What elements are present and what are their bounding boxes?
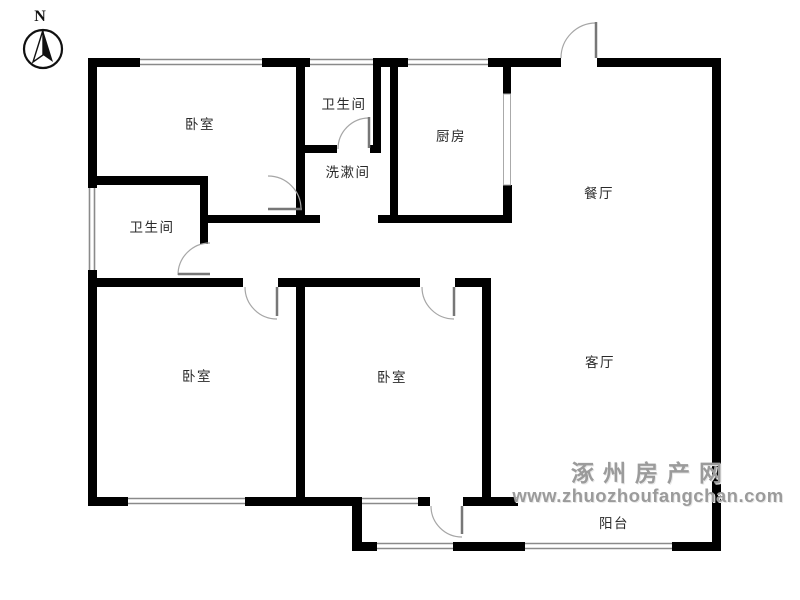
floorplan-drawing — [0, 0, 800, 600]
room-label-living-room: 客厅 — [585, 351, 615, 371]
room-label-bedroom-bottom-left: 卧室 — [182, 365, 212, 385]
floorplan-page: N 卧室 卫生间 洗漱间 厨房 餐厅 卫生间 卧室 卧室 客厅 阳台 涿州房产网… — [0, 0, 800, 600]
watermark-site-url: www.zhuozhoufangchan.com — [512, 485, 783, 507]
room-label-bathroom-left: 卫生间 — [130, 216, 175, 236]
entry-door — [561, 22, 596, 58]
kitchen-sliding-door — [504, 94, 511, 185]
north-compass-icon — [24, 30, 62, 68]
room-label-bedroom-middle: 卧室 — [377, 366, 407, 386]
bedroom-middle-door — [422, 287, 454, 319]
bathroom-left-door — [178, 243, 210, 275]
room-label-kitchen: 厨房 — [436, 125, 466, 145]
compass-north-label: N — [34, 8, 46, 26]
bathroom-top-door — [338, 117, 369, 149]
watermark-site-name: 涿州房产网 — [571, 454, 731, 488]
room-label-dining-room: 餐厅 — [584, 182, 614, 202]
bedroom-bottom-left-door — [245, 287, 277, 319]
balcony-door — [431, 506, 462, 537]
room-label-washroom: 洗漱间 — [326, 161, 371, 181]
room-label-balcony: 阳台 — [599, 512, 629, 532]
room-label-bathroom-top: 卫生间 — [322, 93, 367, 113]
room-label-bedroom-top-left: 卧室 — [185, 113, 215, 133]
